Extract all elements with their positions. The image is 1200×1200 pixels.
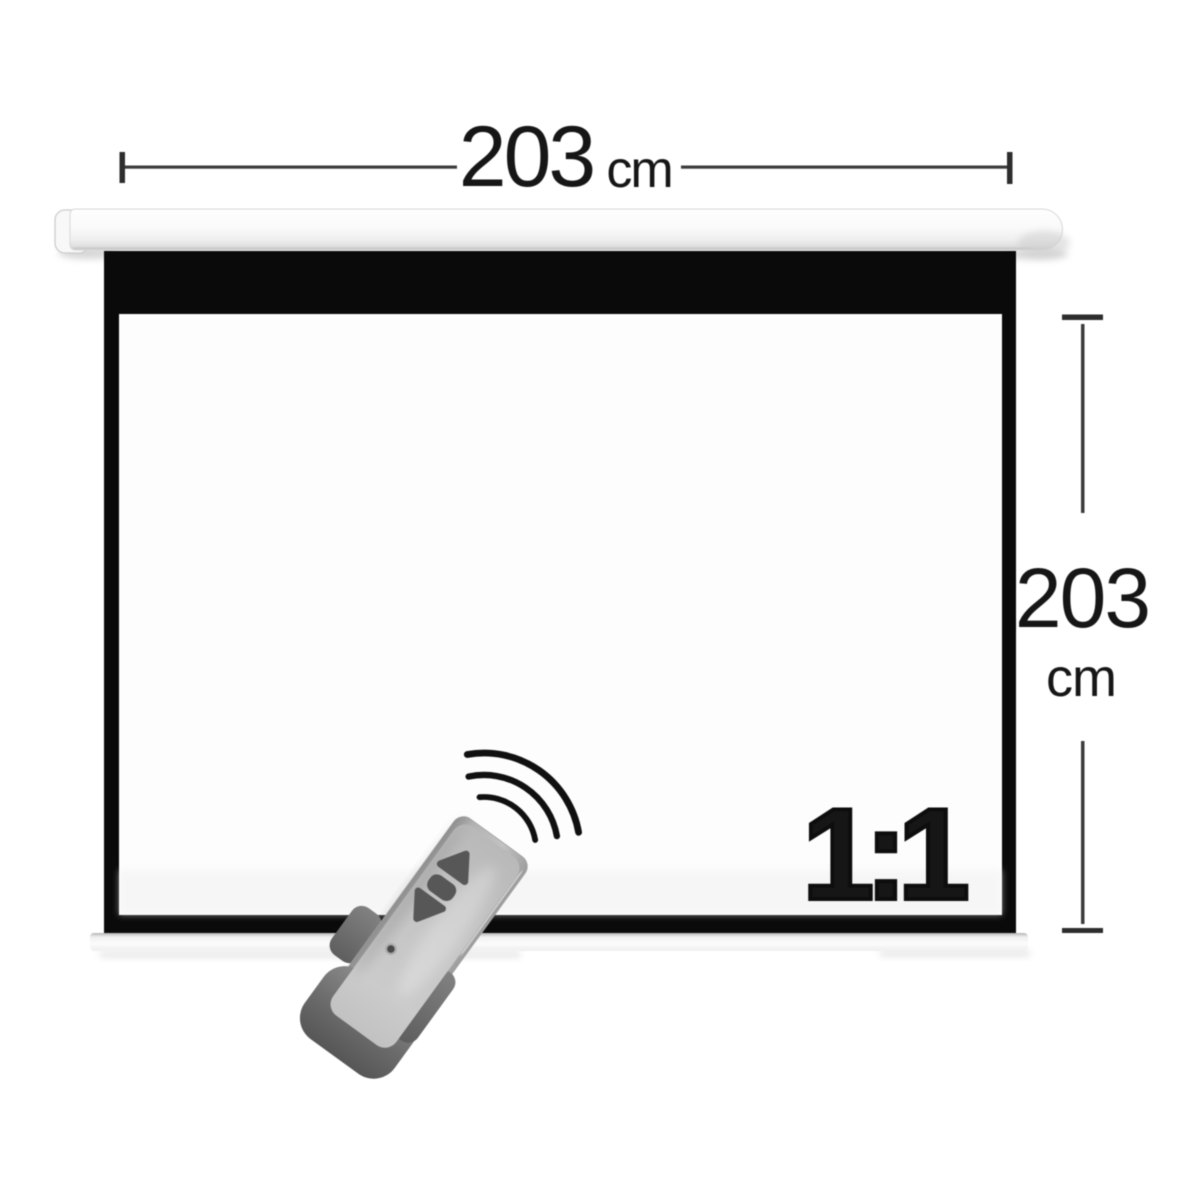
svg-text:203: 203 bbox=[459, 109, 594, 205]
svg-text:cm: cm bbox=[1046, 648, 1116, 708]
svg-text:203: 203 bbox=[1015, 551, 1149, 645]
svg-text:cm: cm bbox=[606, 141, 671, 199]
svg-text:1:1: 1:1 bbox=[802, 781, 967, 927]
